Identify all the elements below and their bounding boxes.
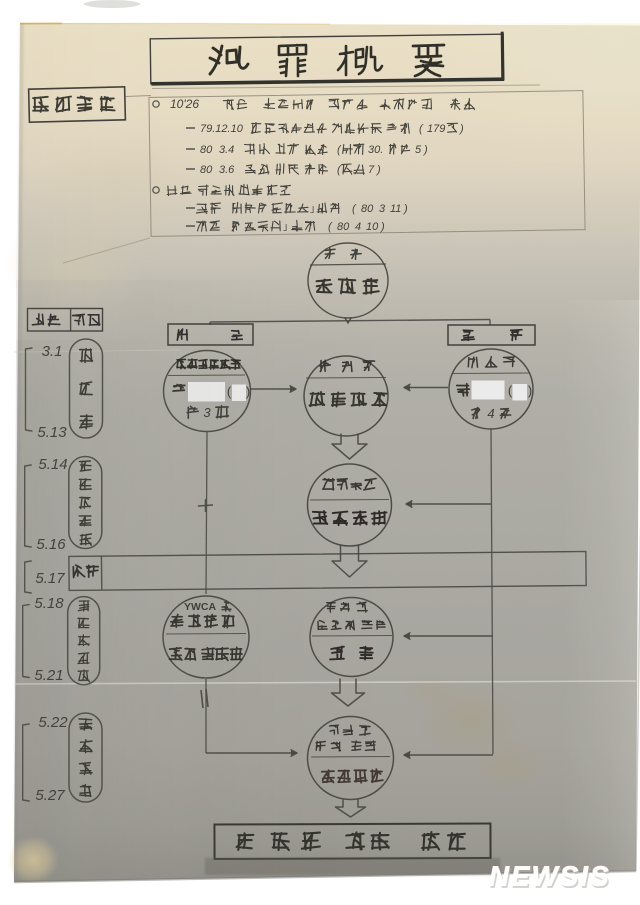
svg-text:NEWSIS: NEWSIS xyxy=(489,861,611,892)
